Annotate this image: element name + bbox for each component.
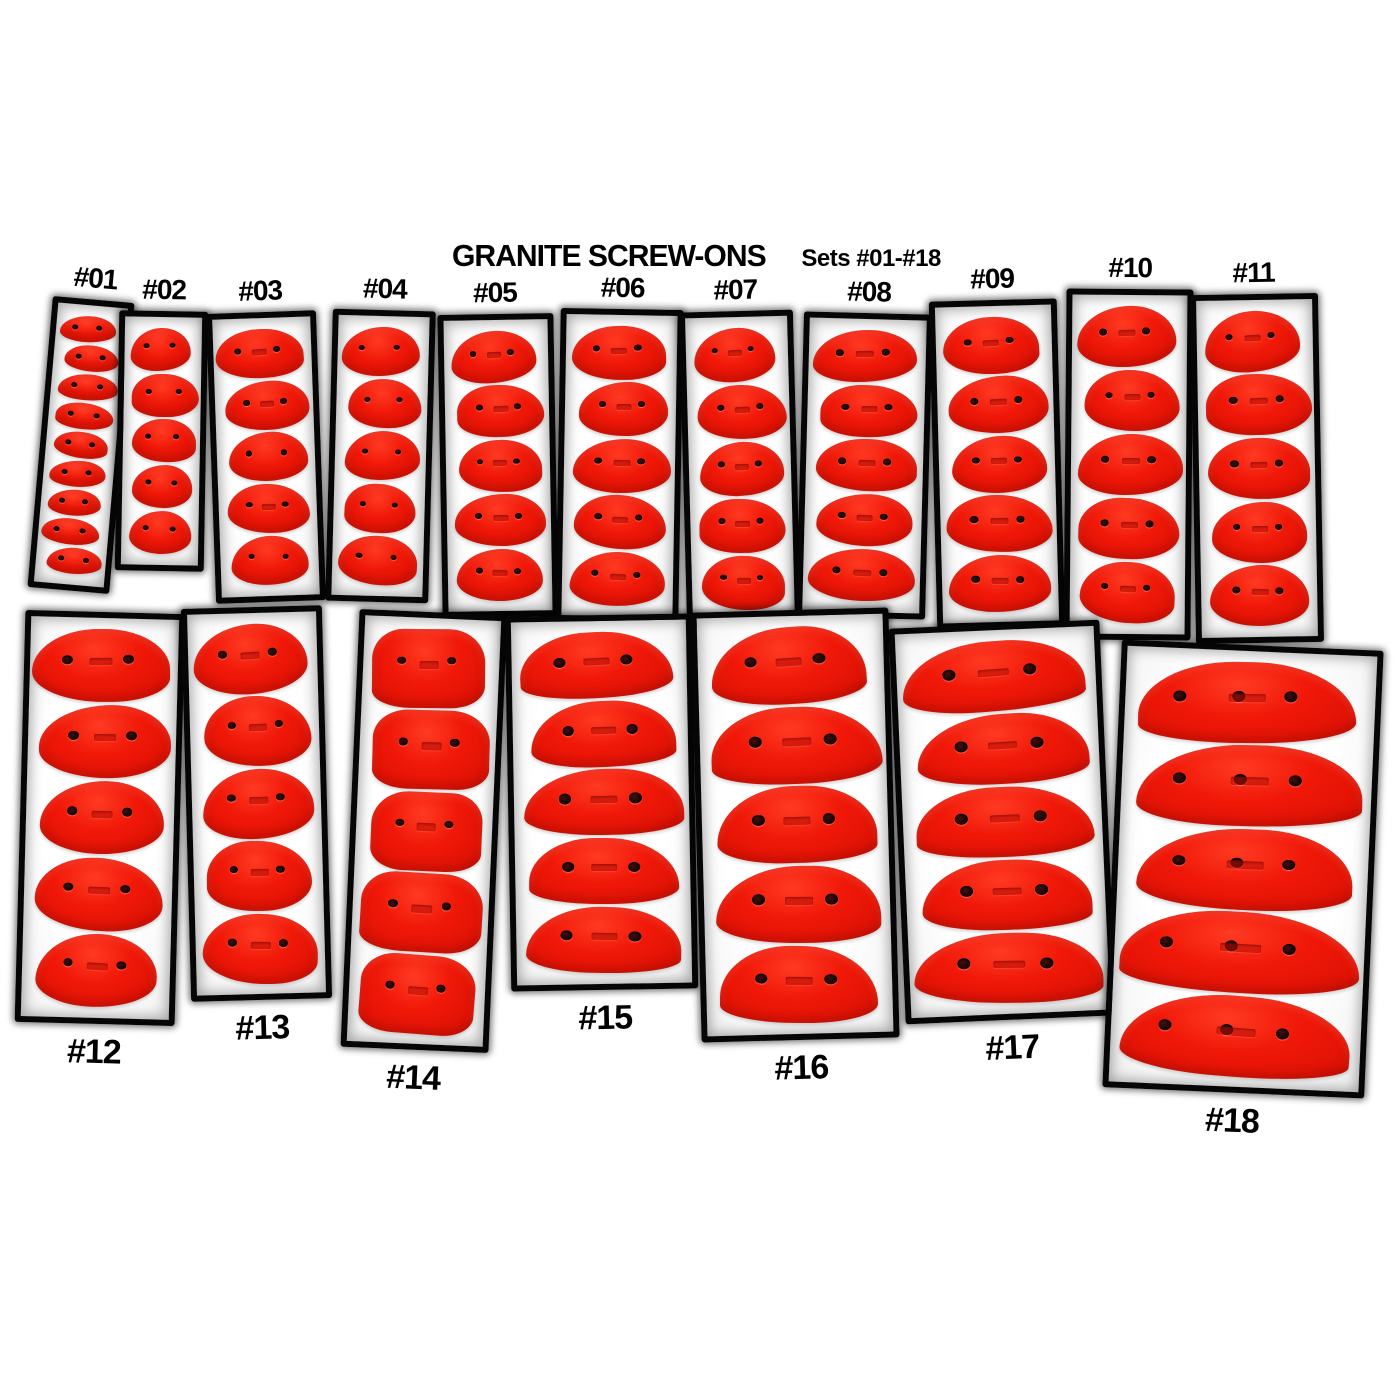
screw-hole xyxy=(1105,392,1113,398)
climbing-hold xyxy=(1078,434,1184,496)
screw-hole xyxy=(1147,392,1155,398)
set-panel-11: #11 xyxy=(1190,293,1324,644)
screw-hole xyxy=(1288,775,1301,786)
climbing-hold xyxy=(1118,986,1354,1085)
brand-emboss xyxy=(86,962,107,970)
climbing-hold xyxy=(369,789,483,873)
climbing-hold xyxy=(708,622,867,708)
climbing-hold xyxy=(202,767,315,840)
screw-hole xyxy=(227,794,236,802)
screw-hole xyxy=(822,813,835,824)
brand-emboss xyxy=(735,520,750,526)
screw-hole xyxy=(594,457,602,464)
climbing-hold xyxy=(456,548,543,601)
climbing-hold xyxy=(33,855,164,934)
set-label: #17 xyxy=(906,1024,1119,1072)
set-sheet xyxy=(690,607,899,1042)
screw-hole xyxy=(120,885,131,894)
screw-hole xyxy=(562,726,574,736)
screw-hole xyxy=(884,404,892,410)
climbing-hold xyxy=(202,913,318,984)
set-label: #16 xyxy=(702,1046,901,1090)
set-panel-08: #08 xyxy=(796,311,933,619)
screw-hole xyxy=(469,350,476,356)
brand-emboss xyxy=(1251,590,1268,596)
brand-emboss xyxy=(610,573,626,580)
brand-emboss xyxy=(983,339,999,346)
screw-hole xyxy=(755,974,768,985)
climbing-hold xyxy=(49,459,106,488)
brand-emboss xyxy=(992,577,1009,583)
climbing-hold xyxy=(39,780,165,856)
climbing-hold xyxy=(1203,308,1301,374)
climbing-hold xyxy=(358,869,485,955)
climbing-hold xyxy=(1076,305,1177,369)
set-panel-09: #09 xyxy=(929,298,1066,629)
screw-hole xyxy=(1274,524,1282,530)
set-label: #07 xyxy=(678,273,793,308)
climbing-hold xyxy=(64,344,120,374)
screw-hole xyxy=(126,732,137,741)
set-panel-06: #06 xyxy=(555,308,683,623)
screw-hole xyxy=(748,736,761,747)
climbing-hold xyxy=(699,441,784,497)
brand-emboss xyxy=(858,460,875,466)
screw-hole xyxy=(68,731,79,740)
catalog-page: GRANITE SCREW-ONS Sets #01-#18 #01#02#03… xyxy=(0,0,1400,1400)
brand-emboss xyxy=(786,977,813,985)
screw-hole xyxy=(99,355,105,360)
screw-hole xyxy=(396,398,402,403)
brand-emboss xyxy=(493,460,507,466)
screw-hole xyxy=(169,527,175,532)
climbing-hold xyxy=(720,945,879,1023)
climbing-hold xyxy=(130,327,191,371)
screw-hole xyxy=(68,410,74,415)
screw-hole xyxy=(633,571,641,578)
screw-hole xyxy=(1282,944,1296,955)
set-panel-17: #17 xyxy=(888,620,1116,1025)
screw-hole xyxy=(474,513,481,519)
screw-hole xyxy=(173,435,179,440)
screw-hole xyxy=(1101,583,1109,590)
set-panel-14: #14 xyxy=(341,609,508,1053)
climbing-hold xyxy=(709,703,883,787)
brand-emboss xyxy=(616,404,631,410)
screw-hole xyxy=(559,794,572,805)
brand-emboss xyxy=(736,577,750,583)
climbing-hold xyxy=(39,705,172,779)
brand-emboss xyxy=(486,351,500,358)
climbing-hold xyxy=(572,438,671,494)
brand-emboss xyxy=(781,737,810,746)
screw-hole xyxy=(143,343,149,348)
climbing-hold xyxy=(526,906,682,975)
screw-hole xyxy=(970,398,978,405)
brand-emboss xyxy=(1220,943,1261,953)
screw-hole xyxy=(957,958,970,969)
screw-hole xyxy=(824,974,837,985)
brand-emboss xyxy=(853,569,871,576)
climbing-hold xyxy=(214,326,305,381)
climbing-hold xyxy=(458,439,542,492)
brand-emboss xyxy=(591,865,617,872)
brand-emboss xyxy=(262,504,276,510)
brand-emboss xyxy=(421,742,441,751)
screw-hole xyxy=(752,815,765,826)
screw-hole xyxy=(53,526,59,531)
climbing-hold xyxy=(203,694,313,769)
brand-emboss xyxy=(591,933,617,940)
screw-hole xyxy=(628,862,640,872)
screw-hole xyxy=(280,398,287,404)
screw-hole xyxy=(248,554,254,559)
climbing-hold xyxy=(807,546,917,604)
screw-hole xyxy=(629,793,642,804)
screw-hole xyxy=(276,866,284,873)
climbing-hold xyxy=(899,634,1087,718)
climbing-hold xyxy=(941,314,1040,377)
screw-hole xyxy=(879,569,888,577)
screw-hole xyxy=(942,669,956,681)
brand-emboss xyxy=(735,463,749,469)
brand-emboss xyxy=(783,817,810,826)
set-sheet xyxy=(929,298,1066,629)
screw-hole xyxy=(1033,810,1046,821)
screw-hole xyxy=(620,654,633,665)
screw-hole xyxy=(1282,859,1295,870)
climbing-hold xyxy=(812,329,916,382)
screw-hole xyxy=(514,403,521,409)
brand-emboss xyxy=(855,351,873,357)
screw-hole xyxy=(506,349,513,355)
screw-hole xyxy=(72,324,78,329)
screw-hole xyxy=(1016,516,1025,523)
screw-hole xyxy=(972,575,980,582)
set-label: #05 xyxy=(437,276,554,310)
brand-emboss xyxy=(583,658,609,666)
brand-emboss xyxy=(977,668,1008,677)
screw-hole xyxy=(86,470,92,475)
climbing-hold xyxy=(53,429,110,461)
screw-hole xyxy=(752,895,765,906)
climbing-hold xyxy=(529,838,679,904)
climbing-hold xyxy=(914,932,1104,1004)
screw-hole xyxy=(755,403,762,409)
climbing-hold xyxy=(1212,502,1307,563)
screw-hole xyxy=(835,349,843,356)
brand-emboss xyxy=(1118,330,1135,336)
brand-emboss xyxy=(248,724,266,732)
screw-hole xyxy=(970,516,979,523)
brand-emboss xyxy=(861,405,877,411)
climbing-hold xyxy=(371,628,485,708)
screw-hole xyxy=(1160,936,1174,947)
brand-emboss xyxy=(492,569,507,575)
set-panel-05: #05 xyxy=(437,313,558,618)
climbing-hold xyxy=(40,516,100,547)
screw-hole xyxy=(954,741,968,752)
screw-hole xyxy=(1158,1018,1172,1030)
brand-emboss xyxy=(419,660,438,668)
climbing-hold xyxy=(914,709,1090,789)
set-label: #04 xyxy=(333,272,437,307)
climbing-hold xyxy=(207,840,313,911)
screw-hole xyxy=(955,814,968,825)
screw-hole xyxy=(116,961,126,969)
screw-hole xyxy=(391,502,397,507)
climbing-hold xyxy=(356,950,477,1038)
climbing-hold xyxy=(715,866,881,944)
screw-hole xyxy=(1275,588,1283,595)
climbing-hold xyxy=(341,327,419,377)
climbing-hold xyxy=(579,382,668,436)
climbing-hold xyxy=(692,326,776,385)
screw-hole xyxy=(592,345,600,351)
screw-hole xyxy=(476,567,483,573)
set-label: #11 xyxy=(1189,256,1318,290)
screw-hole xyxy=(390,555,397,561)
screw-hole xyxy=(515,513,522,519)
climbing-hold xyxy=(337,533,419,587)
climbing-hold xyxy=(131,419,196,463)
brand-emboss xyxy=(992,888,1021,896)
climbing-hold xyxy=(571,325,666,381)
screw-hole xyxy=(1040,957,1053,968)
screw-hole xyxy=(718,518,725,524)
set-sheet xyxy=(341,609,508,1053)
brand-emboss xyxy=(92,810,113,818)
screw-hole xyxy=(280,450,286,455)
screw-hole xyxy=(1230,460,1238,467)
set-sheet xyxy=(325,309,436,604)
screw-hole xyxy=(755,460,762,466)
screw-hole xyxy=(61,469,67,474)
climbing-hold xyxy=(131,464,192,509)
screw-hole xyxy=(449,739,459,747)
brand-emboss xyxy=(411,904,432,913)
brand-emboss xyxy=(1250,462,1267,468)
screw-hole xyxy=(1284,691,1297,702)
set-label: #02 xyxy=(119,273,209,307)
screw-hole xyxy=(58,555,64,560)
set-label: #08 xyxy=(804,274,934,309)
set-label: #10 xyxy=(1067,251,1194,284)
climbing-hold xyxy=(45,545,102,577)
screw-hole xyxy=(89,442,96,448)
brand-emboss xyxy=(249,796,268,803)
climbing-hold xyxy=(530,698,677,769)
screw-hole xyxy=(169,343,175,348)
screw-hole xyxy=(395,818,404,826)
screw-hole xyxy=(123,655,134,664)
screw-hole xyxy=(171,481,177,486)
set-panel-07: #07 xyxy=(679,310,801,629)
brand-emboss xyxy=(610,347,626,353)
screw-hole xyxy=(267,647,277,655)
screw-hole xyxy=(513,458,520,464)
screw-hole xyxy=(824,894,837,905)
brand-emboss xyxy=(856,515,872,522)
climbing-hold xyxy=(456,383,545,438)
set-sheet xyxy=(15,610,186,1026)
screw-hole xyxy=(1145,520,1153,527)
screw-hole xyxy=(756,518,763,524)
set-label: #13 xyxy=(191,1007,333,1050)
screw-hole xyxy=(279,939,288,947)
screw-hole xyxy=(959,886,972,897)
screw-hole xyxy=(756,575,763,580)
screw-hole xyxy=(388,899,398,908)
screw-hole xyxy=(62,958,72,966)
screw-hole xyxy=(176,389,182,394)
screw-hole xyxy=(227,722,236,729)
screw-hole xyxy=(475,405,482,411)
climbing-hold xyxy=(1207,437,1310,500)
screw-hole xyxy=(274,720,283,727)
brand-emboss xyxy=(987,741,1016,750)
climbing-hold xyxy=(921,858,1093,932)
screw-hole xyxy=(79,528,85,533)
climbing-hold xyxy=(449,328,537,384)
brand-emboss xyxy=(250,941,270,948)
screw-hole xyxy=(82,558,88,563)
climbing-hold xyxy=(344,431,420,482)
climbing-hold xyxy=(815,492,913,548)
screw-hole xyxy=(76,353,82,358)
brand-emboss xyxy=(734,406,749,413)
screw-hole xyxy=(720,575,727,580)
screw-hole xyxy=(81,499,87,504)
screw-hole xyxy=(1276,395,1285,402)
screw-hole xyxy=(1172,854,1185,865)
screw-hole xyxy=(65,439,72,445)
set-sheet xyxy=(1063,288,1193,640)
climbing-hold xyxy=(132,374,199,417)
climbing-hold xyxy=(227,484,310,534)
screw-hole xyxy=(360,501,366,506)
set-panel-04: #04 xyxy=(325,309,436,604)
brand-emboss xyxy=(250,869,268,876)
climbing-hold xyxy=(32,629,171,703)
climbing-hold xyxy=(371,709,490,791)
climbing-hold xyxy=(1138,661,1357,744)
screw-hole xyxy=(514,568,521,574)
climbing-hold xyxy=(518,628,674,702)
screw-hole xyxy=(243,399,250,405)
screw-hole xyxy=(441,902,451,911)
screw-hole xyxy=(629,932,642,942)
screw-hole xyxy=(964,339,972,346)
brand-emboss xyxy=(252,348,267,355)
screw-hole xyxy=(1143,585,1151,592)
brand-emboss xyxy=(993,961,1025,968)
set-label: #03 xyxy=(205,273,316,309)
set-label: #12 xyxy=(13,1031,174,1074)
screw-hole xyxy=(1173,690,1186,701)
brand-emboss xyxy=(590,796,617,803)
screw-hole xyxy=(246,503,253,509)
board: #01#02#03#04#05#06#07#08#09#10#11#12#13#… xyxy=(0,0,1400,1400)
screw-hole xyxy=(356,552,363,558)
climbing-hold xyxy=(1136,742,1364,829)
screw-hole xyxy=(230,866,238,873)
brand-emboss xyxy=(1229,694,1266,702)
screw-hole xyxy=(282,502,289,508)
screw-hole xyxy=(837,512,845,519)
screw-hole xyxy=(711,348,718,354)
set-label: #09 xyxy=(928,261,1057,296)
screw-hole xyxy=(1022,663,1036,675)
set-panel-15: #15 xyxy=(505,613,699,991)
screw-hole xyxy=(398,737,408,745)
screw-hole xyxy=(446,657,455,664)
climbing-hold xyxy=(1078,497,1181,561)
climbing-hold xyxy=(344,482,417,534)
screw-hole xyxy=(638,401,645,407)
set-panel-03: #03 xyxy=(206,310,326,604)
climbing-hold xyxy=(348,379,421,429)
screw-hole xyxy=(71,382,77,387)
set-panel-16: #16 xyxy=(690,607,899,1042)
screw-hole xyxy=(358,345,364,350)
screw-hole xyxy=(364,397,370,402)
screw-hole xyxy=(276,793,285,801)
screw-hole xyxy=(144,480,150,485)
screw-hole xyxy=(1147,456,1155,463)
brand-emboss xyxy=(989,814,1019,822)
screw-hole xyxy=(1016,576,1024,583)
screw-hole xyxy=(744,657,757,668)
set-sheet xyxy=(181,605,332,1002)
brand-emboss xyxy=(260,400,274,407)
screw-hole xyxy=(58,498,64,503)
screw-hole xyxy=(881,349,889,356)
screw-hole xyxy=(634,515,642,521)
screw-hole xyxy=(1034,884,1047,895)
climbing-hold xyxy=(699,499,785,554)
screw-hole xyxy=(626,723,638,733)
screw-hole xyxy=(1231,587,1239,594)
brand-emboss xyxy=(1122,458,1140,464)
set-sheet xyxy=(555,308,683,623)
screw-hole xyxy=(62,655,73,664)
set-label: #18 xyxy=(1100,1096,1363,1146)
climbing-hold xyxy=(224,378,310,431)
screw-hole xyxy=(97,384,103,389)
screw-hole xyxy=(246,451,252,456)
screw-hole xyxy=(560,930,573,940)
screw-hole xyxy=(385,980,395,988)
screw-hole xyxy=(395,450,401,455)
set-sheet xyxy=(505,613,699,991)
set-panel-10: #10 xyxy=(1063,288,1193,640)
screw-hole xyxy=(1225,334,1233,341)
screw-hole xyxy=(832,566,841,574)
screw-hole xyxy=(1006,336,1014,343)
screw-hole xyxy=(362,449,368,454)
set-sheet xyxy=(437,313,558,618)
set-panel-13: #13 xyxy=(181,605,332,1002)
screw-hole xyxy=(1233,524,1241,530)
brand-emboss xyxy=(1216,1026,1256,1037)
climbing-hold xyxy=(1084,370,1180,432)
climbing-hold xyxy=(59,315,116,344)
climbing-hold xyxy=(231,536,308,585)
brand-emboss xyxy=(1231,777,1269,786)
brand-emboss xyxy=(240,651,259,659)
screw-hole xyxy=(1030,736,1044,747)
